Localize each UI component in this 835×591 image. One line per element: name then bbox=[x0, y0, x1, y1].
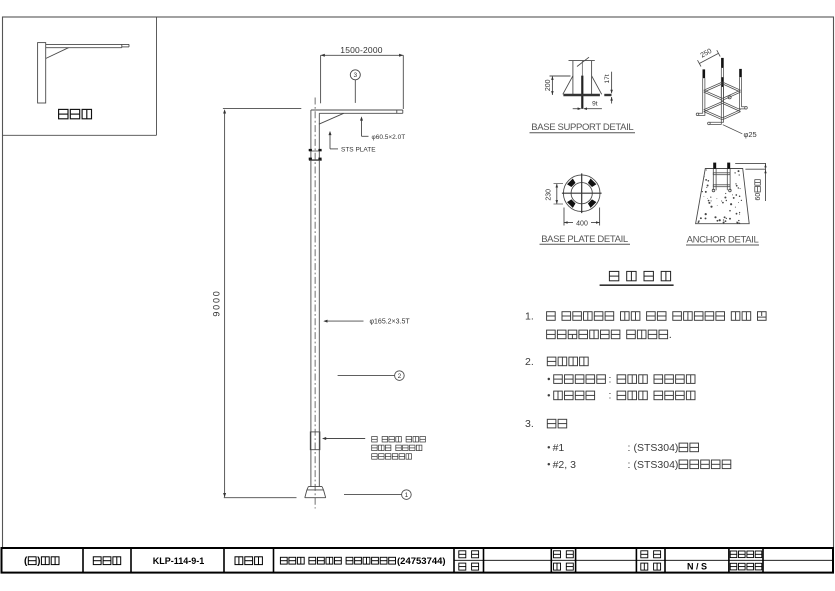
svg-text:9t: 9t bbox=[592, 101, 598, 108]
svg-text:9000: 9000 bbox=[212, 289, 222, 316]
svg-text:φ60.5×2.0T: φ60.5×2.0T bbox=[372, 134, 406, 141]
svg-text:1: 1 bbox=[405, 492, 409, 499]
svg-text::: : bbox=[609, 373, 612, 385]
svg-text:.: . bbox=[669, 329, 672, 341]
svg-text:230: 230 bbox=[546, 189, 553, 201]
svg-text:17t: 17t bbox=[604, 74, 611, 83]
svg-text:60: 60 bbox=[755, 193, 762, 201]
svg-text:φ25: φ25 bbox=[744, 130, 757, 139]
svg-text:(STS304): (STS304) bbox=[634, 459, 679, 471]
svg-text:(24753744): (24753744) bbox=[397, 556, 446, 567]
svg-text:400: 400 bbox=[576, 220, 588, 227]
svg-text:2: 2 bbox=[398, 373, 402, 380]
svg-text:#2, 3: #2, 3 bbox=[553, 459, 577, 471]
svg-text:BASE SUPPORT DETAIL: BASE SUPPORT DETAIL bbox=[531, 122, 633, 133]
svg-text:#1: #1 bbox=[553, 442, 565, 454]
svg-text:3: 3 bbox=[353, 72, 357, 79]
svg-text:3.: 3. bbox=[525, 418, 534, 430]
svg-text::: : bbox=[609, 390, 612, 402]
svg-text::: : bbox=[628, 442, 631, 454]
svg-text::: : bbox=[628, 459, 631, 471]
svg-text:2.: 2. bbox=[525, 356, 534, 368]
svg-text:BASE PLATE DETAIL: BASE PLATE DETAIL bbox=[541, 234, 628, 245]
svg-text:STS PLATE: STS PLATE bbox=[341, 146, 376, 153]
svg-text:1.: 1. bbox=[525, 311, 534, 323]
svg-text:φ165.2×3.5T: φ165.2×3.5T bbox=[370, 318, 411, 325]
svg-text:ANCHOR DETAIL: ANCHOR DETAIL bbox=[687, 235, 759, 246]
svg-text:N / S: N / S bbox=[687, 562, 707, 572]
svg-text:1500-2000: 1500-2000 bbox=[340, 45, 383, 55]
svg-text:200: 200 bbox=[545, 79, 552, 91]
svg-text:): ) bbox=[37, 556, 40, 567]
svg-text:KLP-114-9-1: KLP-114-9-1 bbox=[153, 556, 205, 566]
svg-text:(STS304): (STS304) bbox=[634, 442, 679, 454]
